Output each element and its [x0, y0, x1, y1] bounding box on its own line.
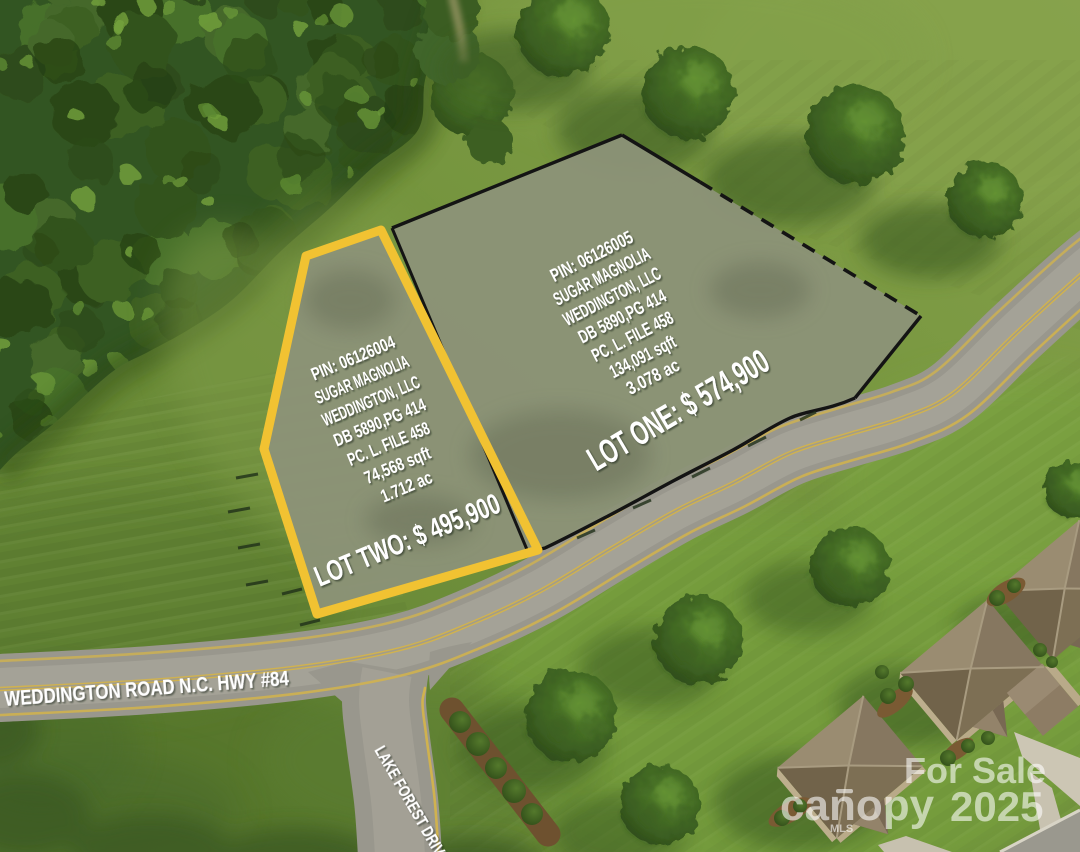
- svg-text:2025: 2025: [950, 783, 1043, 830]
- svg-text:MLS: MLS: [830, 823, 853, 835]
- svg-text:canopy: canopy: [780, 781, 935, 830]
